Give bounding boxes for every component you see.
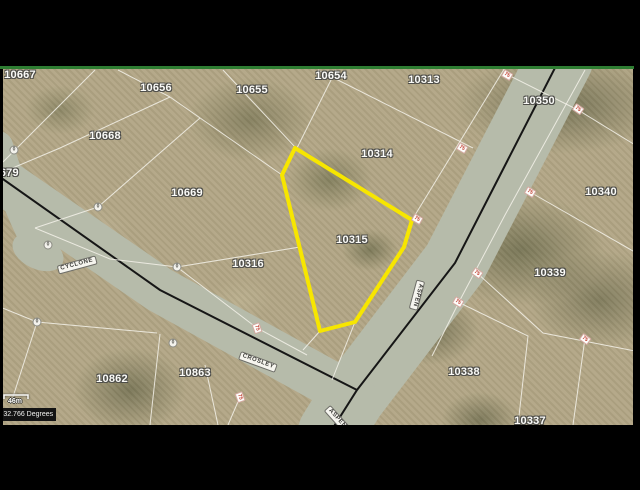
scale-bar-label: 46m [8, 398, 22, 405]
parcel-label-10339: 10339 [534, 267, 566, 279]
parcel-boundary-line [530, 192, 633, 255]
parcel-label-10340: 10340 [585, 186, 617, 198]
coordinates-text: -32.766 Degrees [3, 411, 53, 418]
parcel-label-10337: 10337 [514, 415, 546, 425]
map-vector-layer [3, 69, 633, 425]
parcel-label-10862: 10862 [96, 373, 128, 385]
parcel-boundary-line [303, 331, 320, 350]
parcel-label-10655: 10655 [236, 84, 268, 96]
parcel-label-10654: 10654 [315, 70, 347, 82]
parcel-boundary-line [573, 338, 585, 425]
parcel-boundary-line [458, 302, 528, 425]
parcel-label-10669: 10669 [171, 187, 203, 199]
parcel-label-10338: 10338 [448, 366, 480, 378]
parcel-label-10313: 10313 [408, 74, 440, 86]
coordinates-readout: -32.766 Degrees [3, 408, 56, 421]
map-canvas[interactable]: 1066710656106551065410313103501066810314… [3, 69, 633, 425]
crosley-road [3, 174, 354, 397]
map-viewport[interactable]: 1066710656106551065410313103501066810314… [3, 69, 633, 425]
parcel-boundary-line [12, 322, 37, 400]
aspen-road [331, 69, 560, 425]
parcel-boundary-line [3, 307, 157, 333]
parcel-label-10679: 10679 [3, 167, 19, 179]
vertex-marker: 0 [94, 203, 103, 212]
vertex-marker: 0 [44, 241, 53, 250]
parcel-boundary-line [3, 97, 170, 172]
parcel-boundary-line [170, 97, 282, 175]
vertex-marker: 0 [173, 263, 182, 272]
parcel-label-10316: 10316 [232, 258, 264, 270]
map-window: 1066710656106551065410313103501066810314… [0, 0, 640, 490]
parcel-label-10863: 10863 [179, 367, 211, 379]
vertex-marker: 0 [10, 146, 19, 155]
parcel-label-10656: 10656 [140, 82, 172, 94]
vertex-marker: 0 [33, 318, 42, 327]
vertex-marker: 0 [169, 339, 178, 348]
parcel-label-10314: 10314 [361, 148, 393, 160]
parcel-label-10350: 10350 [523, 95, 555, 107]
parcel-label-10668: 10668 [89, 130, 121, 142]
parcel-boundary-line [150, 334, 160, 425]
parcel-label-10315: 10315 [336, 234, 368, 246]
parcel-boundary-line [477, 273, 633, 352]
west-branch-road [3, 146, 34, 238]
parcel-boundary-line [223, 70, 295, 147]
parcel-label-10667: 10667 [4, 69, 36, 81]
